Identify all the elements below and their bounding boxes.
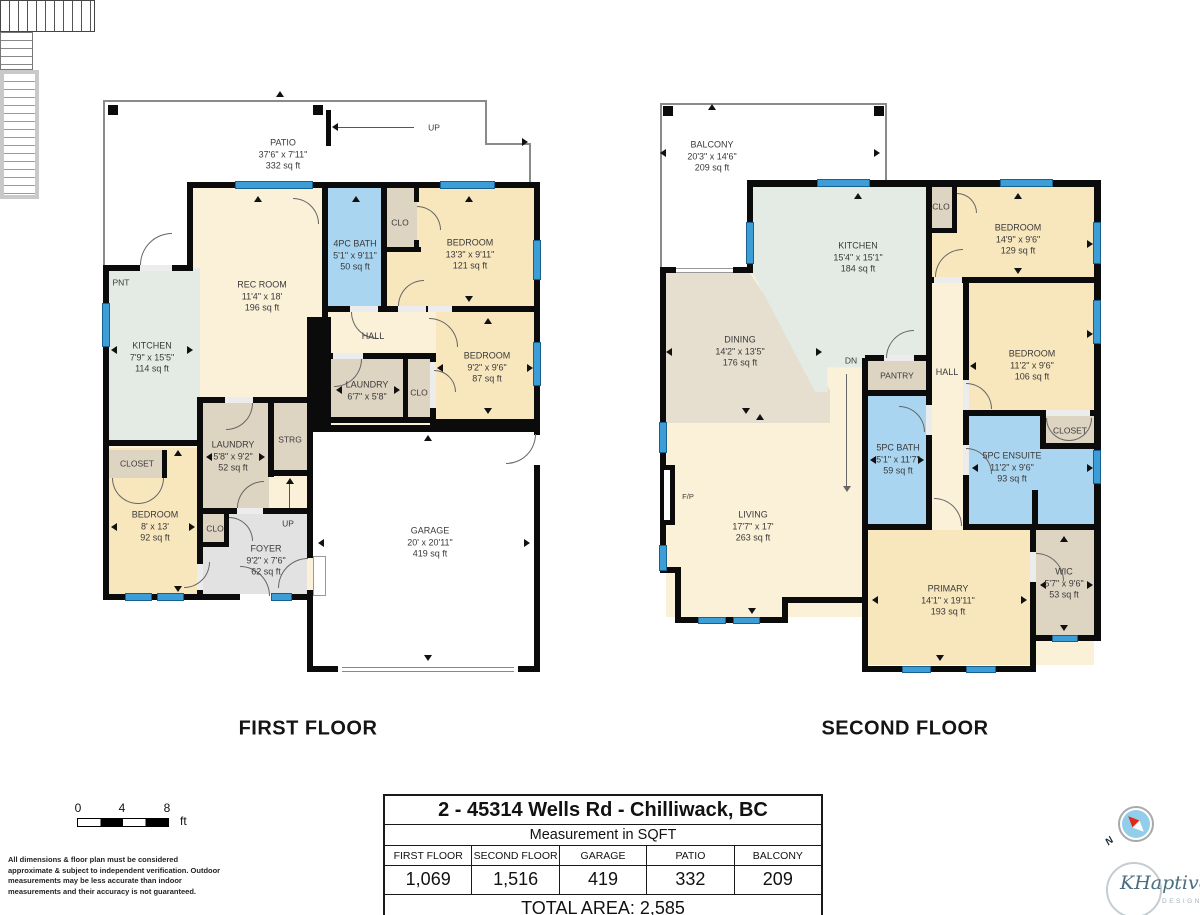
label-bedroom4: BEDROOM14'9" x 9'6"129 sq ft (995, 222, 1042, 257)
element: BEDROOM (464, 350, 511, 362)
khaptive-logo-subtext: DESIGN (1162, 898, 1200, 905)
label-5pc-bath: 5PC BATH5'1" x 11'7"59 sq ft (876, 442, 920, 477)
element: 419 sq ft (407, 549, 453, 561)
wall (930, 228, 957, 233)
wall (865, 390, 928, 396)
element: 193 sq ft (921, 607, 975, 619)
wall-opening (237, 508, 263, 514)
window (271, 593, 292, 601)
element: 14'2" x 13'5" (715, 346, 764, 358)
direction-arrow-icon (936, 655, 944, 661)
col-value-second-floor: 1,516 (472, 866, 558, 894)
window (235, 181, 313, 189)
direction-arrow-icon (854, 193, 862, 199)
total-area: TOTAL AREA: 2,585 (385, 895, 821, 915)
wall (926, 187, 932, 405)
element: PRIMARY (921, 583, 975, 595)
window (125, 593, 152, 601)
wall (403, 353, 408, 423)
element: 4PC BATH (333, 238, 377, 250)
element: 87 sq ft (464, 374, 511, 386)
direction-arrow-icon (1060, 625, 1068, 631)
wall (103, 440, 203, 446)
scale-tick-8: 8 (164, 801, 171, 815)
label-pantry: PANTRY (880, 370, 914, 381)
wall-opening (140, 265, 172, 271)
direction-arrow-icon (465, 296, 473, 302)
col-value-first-floor: 1,069 (385, 866, 471, 894)
direction-arrow-icon (1060, 536, 1068, 542)
direction-arrow-icon (276, 91, 284, 97)
scale-bar (77, 818, 169, 827)
measurement-subtitle: Measurement in SQFT (385, 825, 821, 846)
wall (197, 397, 310, 403)
wall-opening (1046, 410, 1090, 416)
stair-arrow-line (336, 127, 414, 128)
wall (331, 417, 436, 423)
direction-arrow-icon (742, 408, 750, 414)
direction-arrow-icon (816, 348, 822, 356)
wall (660, 267, 666, 573)
element: LAUNDRY (346, 379, 389, 391)
balcony-outline (885, 103, 887, 183)
col-header-patio: PATIO (647, 846, 733, 866)
label-balcony: BALCONY20'3" x 14'6"209 sq ft (687, 139, 736, 174)
direction-arrow-icon (352, 196, 360, 202)
col-header-first-floor: FIRST FLOOR (385, 846, 471, 866)
post (874, 106, 884, 116)
direction-arrow-icon (111, 523, 117, 531)
col-header-garage: GARAGE (560, 846, 646, 866)
element: 20' x 20'11" (407, 537, 453, 549)
label-clo2: CLO (410, 387, 427, 398)
element: BEDROOM (1009, 348, 1056, 360)
label-kitchen1: KITCHEN7'9" x 15'5"114 sq ft (130, 340, 174, 375)
element: 37'6" x 7'11" (259, 149, 308, 161)
element: REC ROOM (237, 279, 287, 291)
element: 13'3" x 9'11" (446, 249, 495, 261)
label-ensuite: 5PC ENSUITE11'2" x 9'6"93 sq ft (982, 450, 1041, 485)
direction-arrow-icon (187, 346, 193, 354)
wall (862, 666, 1036, 672)
direction-arrow-icon (708, 104, 716, 110)
label-4pc-bath: 4PC BATH5'1" x 9'11"50 sq ft (333, 238, 377, 273)
direction-arrow-icon (874, 149, 880, 157)
element: 62 sq ft (246, 567, 285, 579)
balcony-outline (660, 103, 887, 105)
window (659, 545, 667, 571)
element: FOYER (246, 543, 285, 555)
direction-arrow-icon (756, 414, 764, 420)
label-up-foyer: UP (282, 518, 294, 529)
label-clo4: CLO (932, 201, 949, 212)
direction-arrow-icon (259, 453, 265, 461)
element: 8' x 13' (132, 521, 179, 533)
direction-arrow-icon (424, 435, 432, 441)
element: 50 sq ft (333, 262, 377, 274)
scale-unit: ft (180, 814, 187, 828)
wall (326, 110, 331, 146)
patio-outline (103, 100, 105, 266)
label-rec-room: REC ROOM11'4" x 18'196 sq ft (237, 279, 287, 314)
wall (675, 617, 788, 623)
label-garage: GARAGE20' x 20'11"419 sq ft (407, 525, 453, 560)
label-pnt: PNT (113, 277, 130, 288)
element: 129 sq ft (995, 246, 1042, 258)
label-laundry2: LAUNDRY6'7" x 5'8" (346, 379, 389, 402)
label-living: LIVING17'7" x 17'263 sq ft (732, 509, 773, 544)
element: 209 sq ft (687, 163, 736, 175)
wall (782, 597, 868, 603)
label-closet2: CLOSET (1053, 425, 1087, 436)
label-fp: F/P (682, 492, 694, 502)
wall (307, 353, 436, 359)
balcony-outline (660, 103, 662, 267)
stair-arrow-line (289, 481, 290, 509)
direction-arrow-icon (332, 123, 338, 131)
element: 106 sq ft (1009, 372, 1056, 384)
wall (268, 470, 313, 476)
element: 5'1" x 9'11" (333, 250, 377, 262)
wall (414, 182, 419, 202)
window (533, 342, 541, 386)
direction-arrow-icon (1014, 268, 1022, 274)
direction-arrow-icon (484, 408, 492, 414)
element: 184 sq ft (833, 264, 882, 276)
element: 6'7" x 5'8" (346, 391, 389, 403)
label-hall2: HALL (936, 367, 959, 379)
element: BEDROOM (995, 222, 1042, 234)
door-swing-icon (140, 233, 172, 265)
wall (926, 435, 932, 527)
window (659, 422, 667, 453)
direction-arrow-icon (660, 149, 666, 157)
stairs-down (0, 70, 39, 199)
room-bedroom5 (969, 283, 1094, 410)
element (676, 268, 733, 273)
label-clo1: CLO (391, 217, 408, 228)
element (664, 470, 670, 520)
label-laundry1: LAUNDRY5'8" x 9'2"52 sq ft (212, 439, 255, 474)
tb-col: FIRST FLOOR 1,069 (385, 846, 472, 894)
element: 17'7" x 17' (732, 521, 773, 533)
direction-arrow-icon (1021, 596, 1027, 604)
element: KITCHEN (130, 340, 174, 352)
col-header-balcony: BALCONY (735, 846, 821, 866)
window (102, 303, 110, 347)
element: BALCONY (687, 139, 736, 151)
label-bedroom1: BEDROOM13'3" x 9'11"121 sq ft (446, 237, 495, 272)
direction-arrow-icon (972, 464, 978, 472)
element: 11'2" x 9'6" (982, 462, 1041, 474)
wall (187, 182, 193, 271)
element: 14'1" x 19'11" (921, 595, 975, 607)
direction-arrow-icon (286, 478, 294, 484)
label-bedroom5: BEDROOM11'2" x 9'6"106 sq ft (1009, 348, 1056, 383)
window (1093, 222, 1101, 264)
element: 7'9" x 15'5" (130, 352, 174, 364)
direction-arrow-icon (254, 196, 262, 202)
col-value-balcony: 209 (735, 866, 821, 894)
window (1093, 450, 1101, 484)
wall-opening (398, 306, 426, 312)
element: 263 sq ft (732, 533, 773, 545)
label-patio: PATIO37'6" x 7'11"332 sq ft (259, 137, 308, 172)
direction-arrow-icon (189, 523, 195, 531)
tb-col: GARAGE 419 (560, 846, 647, 894)
wall (862, 358, 868, 672)
label-primary: PRIMARY14'1" x 19'11"193 sq ft (921, 583, 975, 618)
tb-col: SECOND FLOOR 1,516 (472, 846, 559, 894)
window (533, 240, 541, 280)
direction-arrow-icon (174, 586, 182, 592)
element: 9'2" x 7'6" (246, 555, 285, 567)
label-clo3: CLO (206, 523, 223, 534)
direction-arrow-icon (1087, 464, 1093, 472)
scale-tick-0: 0 (75, 801, 82, 815)
element: DINING (715, 334, 764, 346)
label-dining: DINING14'2" x 13'5"176 sq ft (715, 334, 764, 369)
wall-opening (934, 277, 962, 283)
compass-north-label: N (1103, 835, 1116, 848)
stairs-patio-up (0, 0, 95, 32)
element: 332 sq ft (259, 161, 308, 173)
label-closet1: CLOSET (120, 458, 154, 469)
wall-opening (428, 306, 452, 312)
col-value-garage: 419 (560, 866, 646, 894)
wall (307, 425, 313, 558)
wall (197, 542, 229, 547)
direction-arrow-icon (318, 539, 324, 547)
window (1052, 635, 1078, 642)
second-floor-title: SECOND FLOOR (821, 718, 988, 741)
direction-arrow-icon (336, 386, 342, 394)
wall (1040, 443, 1100, 449)
element: 5'8" x 9'2" (212, 451, 255, 463)
tb-col: PATIO 332 (647, 846, 734, 894)
label-bedroom2: BEDROOM9'2" x 9'6"87 sq ft (464, 350, 511, 385)
col-header-second-floor: SECOND FLOOR (472, 846, 558, 866)
tb-row: FIRST FLOOR 1,069 SECOND FLOOR 1,516 GAR… (385, 846, 821, 895)
wall (307, 590, 313, 672)
post (313, 105, 323, 115)
element: 20'3" x 14'6" (687, 151, 736, 163)
direction-arrow-icon (1087, 581, 1093, 589)
wall (322, 182, 328, 317)
window (1000, 179, 1053, 187)
direction-arrow-icon (748, 608, 756, 614)
element: 11'2" x 9'6" (1009, 360, 1056, 372)
element: 196 sq ft (237, 303, 287, 315)
element: 5'7" x 9'6" (1044, 578, 1083, 590)
wall (862, 524, 932, 530)
label-kitchen2: KITCHEN15'4" x 15'1"184 sq ft (833, 240, 882, 275)
wall (268, 397, 274, 477)
element: 5PC ENSUITE (982, 450, 1041, 462)
wall (414, 240, 419, 252)
element: 14'9" x 9'6" (995, 234, 1042, 246)
window (1093, 300, 1101, 344)
post (663, 106, 673, 116)
foyer-garage-door-slab (313, 556, 326, 596)
label-foyer: FOYER9'2" x 7'6"62 sq ft (246, 543, 285, 578)
patio-outline (103, 100, 487, 102)
element: BEDROOM (446, 237, 495, 249)
direction-arrow-icon (111, 346, 117, 354)
window (817, 179, 870, 187)
element (342, 667, 514, 672)
element: 59 sq ft (876, 466, 920, 478)
element: 53 sq ft (1044, 590, 1083, 602)
element: 52 sq ft (212, 463, 255, 475)
direction-arrow-icon (465, 196, 473, 202)
direction-arrow-icon (524, 539, 530, 547)
direction-arrow-icon (484, 318, 492, 324)
element: LAUNDRY (212, 439, 255, 451)
window (966, 666, 996, 673)
direction-arrow-icon (1014, 193, 1022, 199)
scale-tick-4: 4 (119, 801, 126, 815)
element: 121 sq ft (446, 261, 495, 273)
element: LIVING (732, 509, 773, 521)
direction-arrow-icon (872, 596, 878, 604)
wall (313, 425, 540, 432)
stairs-foyer-up (0, 32, 33, 70)
title-block: 2 - 45314 Wells Rd - Chilliwack, BC Meas… (383, 794, 823, 915)
direction-arrow-icon (527, 364, 533, 372)
label-up-top: UP (428, 122, 440, 133)
khaptive-logo-text: KHaptive (1120, 872, 1200, 894)
direction-arrow-icon (174, 450, 182, 456)
direction-arrow-icon (1087, 330, 1093, 338)
element: 176 sq ft (715, 358, 764, 370)
wall (1030, 530, 1036, 641)
direction-arrow-icon (522, 138, 528, 146)
wall (162, 450, 167, 478)
window (157, 593, 184, 601)
floor-plan-sheet: PATIO37'6" x 7'11"332 sq ft UP REC ROOM1… (0, 0, 1200, 915)
element: WIC (1044, 566, 1083, 578)
element: 15'4" x 15'1" (833, 252, 882, 264)
label-hall1: HALL (362, 331, 385, 343)
label-bedroom3: BEDROOM8' x 13'92 sq ft (132, 509, 179, 544)
direction-arrow-icon (1087, 240, 1093, 248)
element: 92 sq ft (132, 533, 179, 545)
patio-outline (529, 143, 531, 184)
wall (675, 567, 681, 623)
label-wic: WIC5'7" x 9'6"53 sq ft (1044, 566, 1083, 601)
window (733, 617, 760, 624)
element: 93 sq ft (982, 474, 1041, 486)
element: PATIO (259, 137, 308, 149)
element: 9'2" x 9'6" (464, 362, 511, 374)
tb-col: BALCONY 209 (735, 846, 821, 894)
disclaimer-text: All dimensions & floor plan must be cons… (8, 855, 222, 897)
direction-arrow-icon (437, 364, 443, 372)
direction-arrow-icon (424, 655, 432, 661)
post (108, 105, 118, 115)
element: 5'1" x 11'7" (876, 454, 920, 466)
stair-arrow-line (846, 374, 847, 486)
window (440, 181, 495, 189)
wall-opening (926, 405, 932, 435)
address-title: 2 - 45314 Wells Rd - Chilliwack, BC (385, 796, 821, 825)
label-strg: STRG (278, 434, 302, 445)
element: 114 sq ft (130, 364, 174, 376)
direction-arrow-icon (666, 348, 672, 356)
direction-arrow-icon (870, 456, 876, 464)
first-floor-title: FIRST FLOOR (239, 718, 378, 741)
wall (307, 397, 313, 425)
window (698, 617, 726, 624)
window (746, 222, 754, 264)
direction-arrow-icon (970, 362, 976, 370)
direction-arrow-icon (843, 486, 851, 492)
element: GARAGE (407, 525, 453, 537)
col-value-patio: 332 (647, 866, 733, 894)
element: 5PC BATH (876, 442, 920, 454)
element: BEDROOM (132, 509, 179, 521)
direction-arrow-icon (394, 386, 400, 394)
element: 11'4" x 18' (237, 291, 287, 303)
element: KITCHEN (833, 240, 882, 252)
wall (1032, 490, 1038, 530)
label-dn: DN (845, 355, 857, 366)
window (902, 666, 931, 673)
patio-outline (485, 100, 487, 145)
